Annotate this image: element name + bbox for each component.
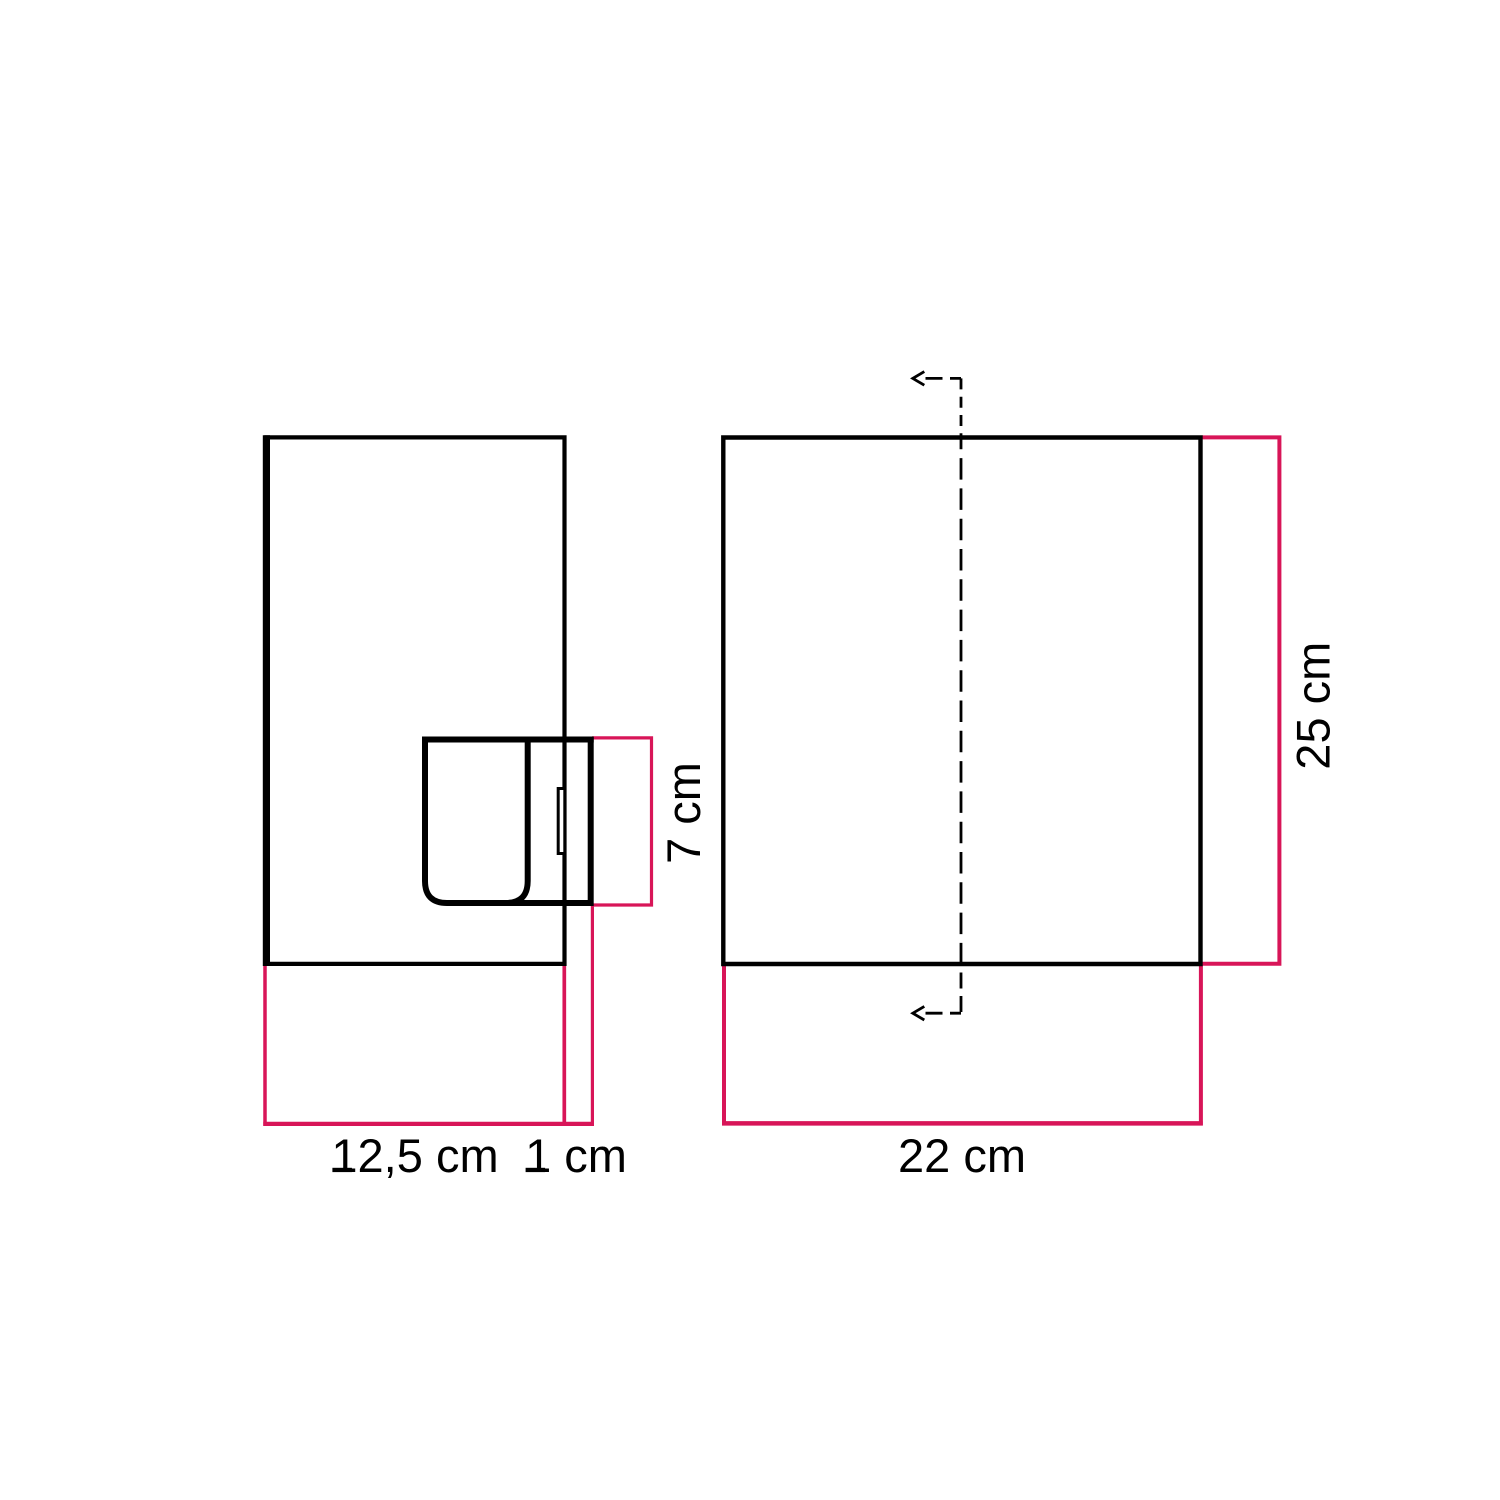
svg-text:25 cm: 25 cm xyxy=(1287,642,1340,770)
svg-text:12,5 cm: 12,5 cm xyxy=(331,1129,498,1182)
svg-text:22 cm: 22 cm xyxy=(898,1129,1026,1182)
svg-text:1 cm: 1 cm xyxy=(525,1129,627,1182)
svg-text:7 cm: 7 cm xyxy=(657,762,710,864)
